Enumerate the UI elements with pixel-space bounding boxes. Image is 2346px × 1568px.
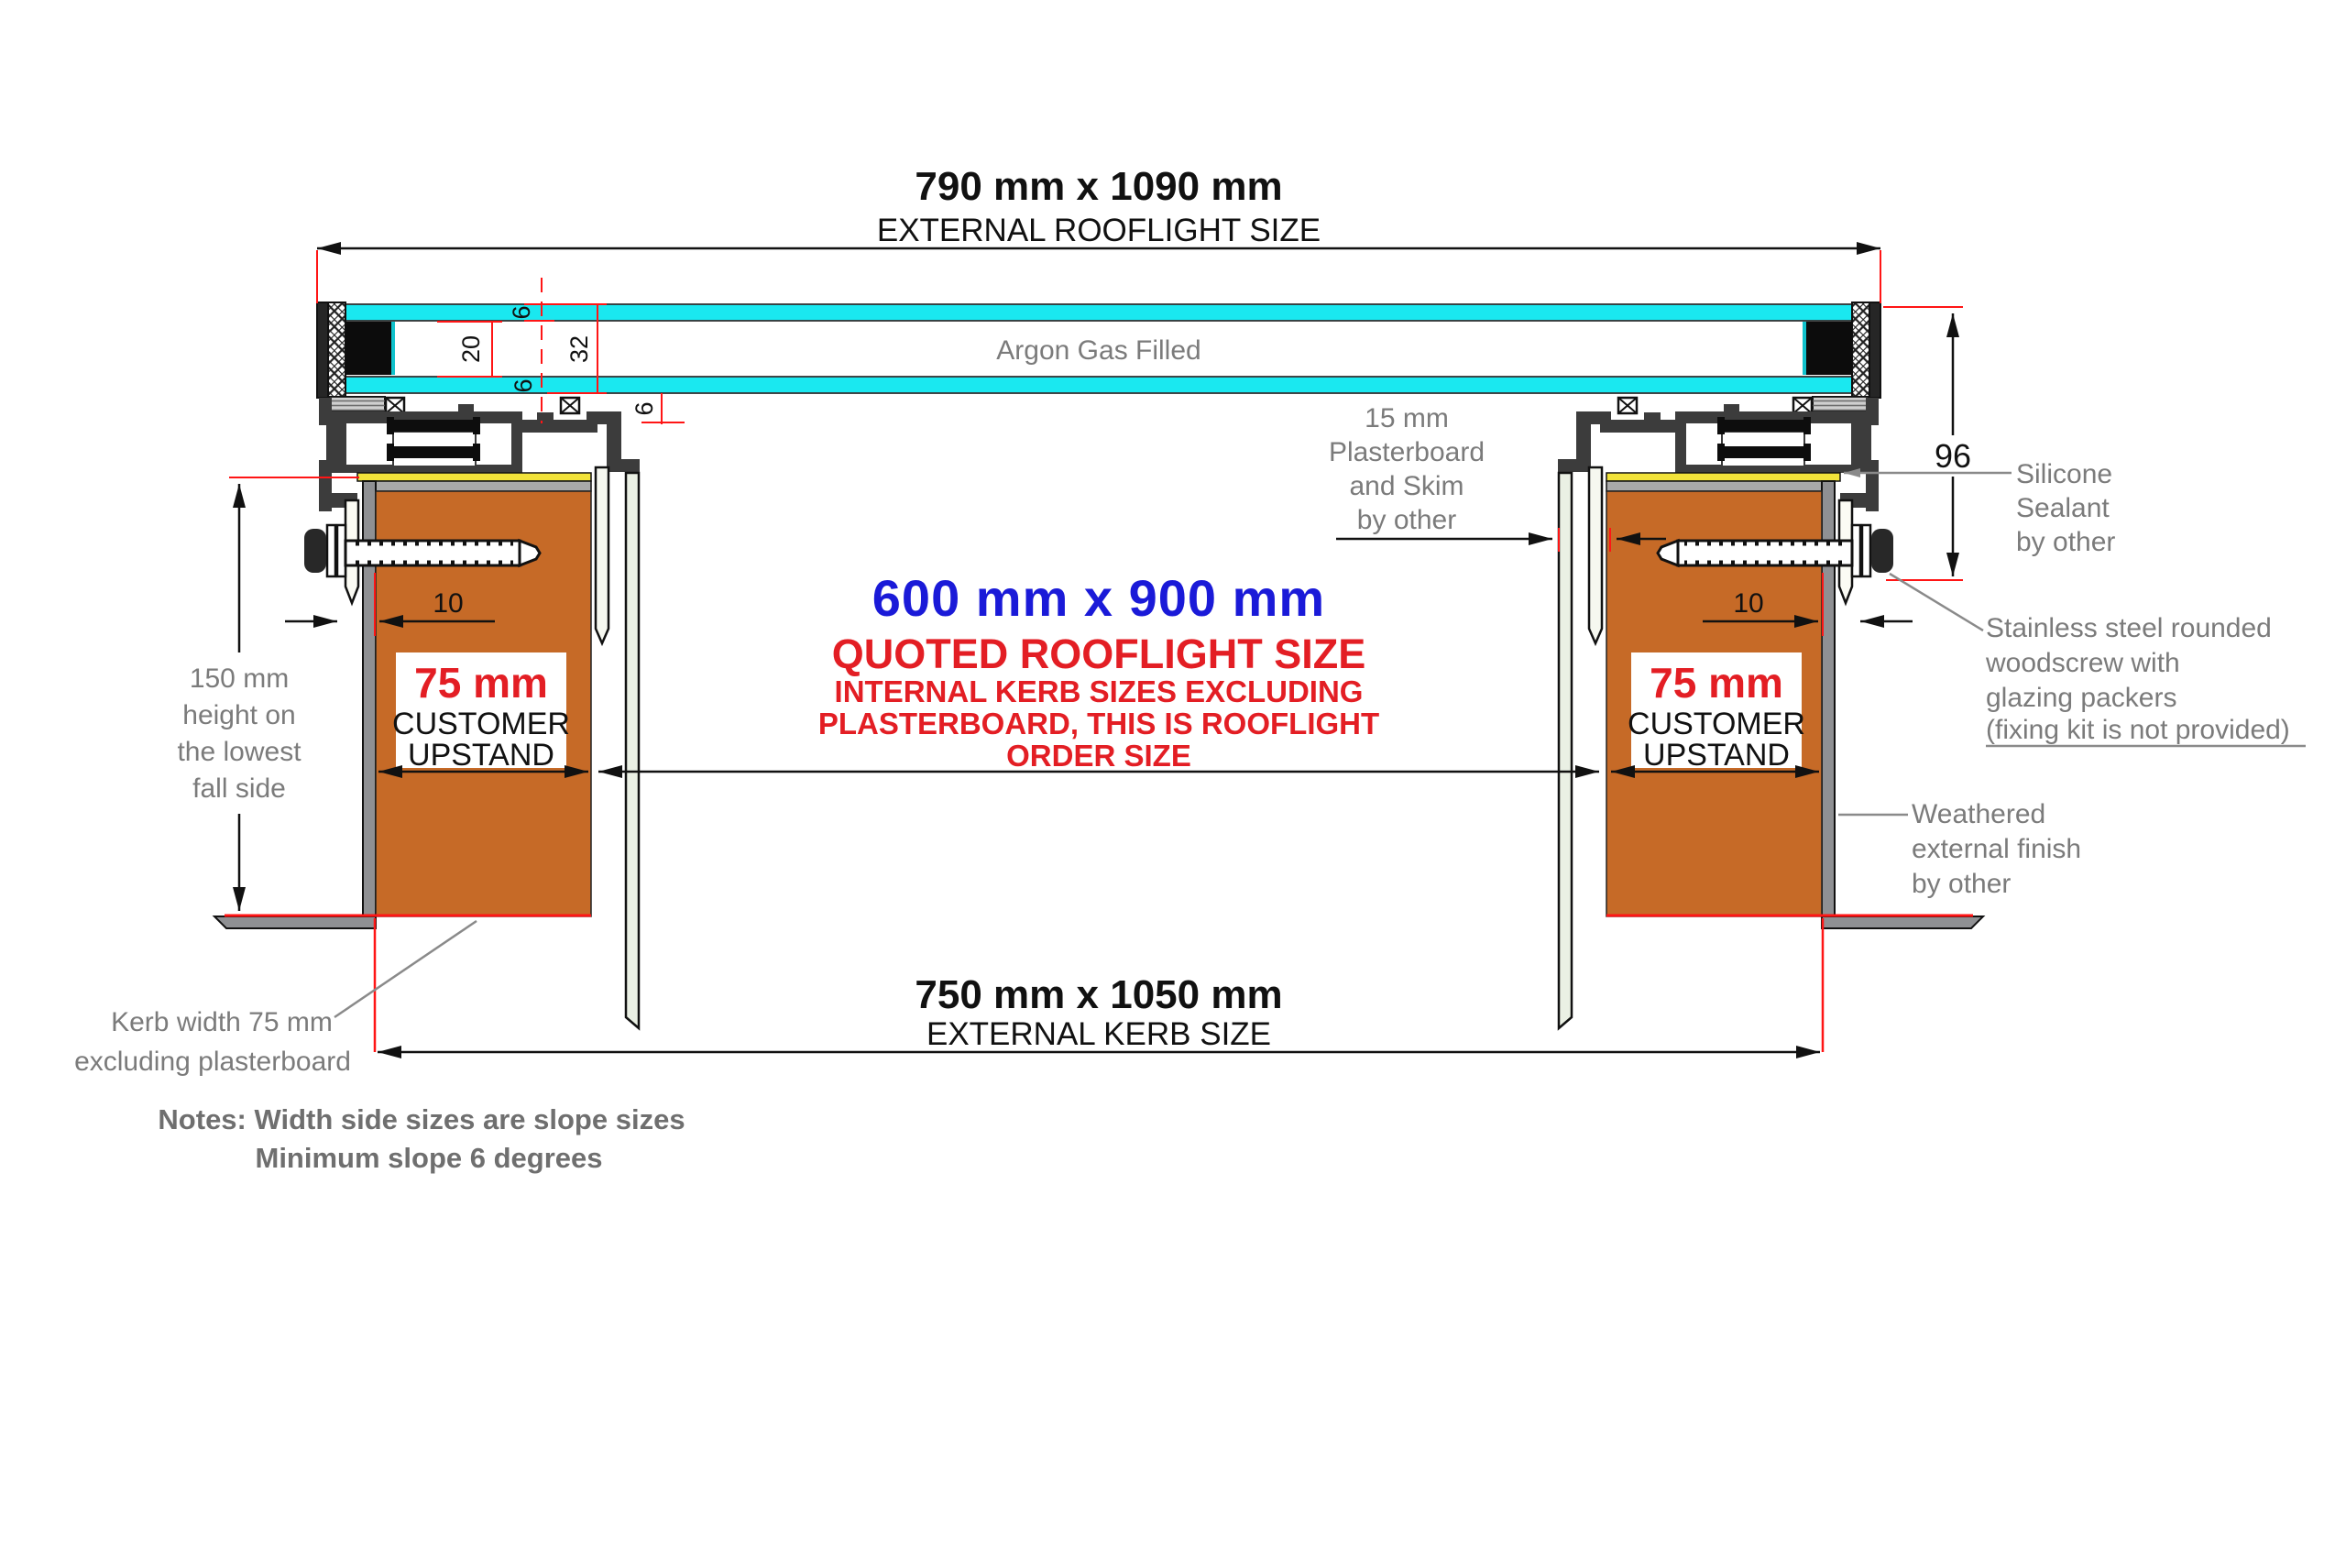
frame-void xyxy=(394,458,475,466)
screw-note-3: glazing packers xyxy=(1986,683,2176,713)
rooflight-section-diagram: Argon Gas Filled xyxy=(0,0,2346,1568)
frame-height-dimension: 96 xyxy=(1883,307,1971,580)
spacer-edge-line xyxy=(391,322,395,375)
height-note-3: the lowest xyxy=(177,737,301,767)
top-pane-dim: 6 xyxy=(508,305,535,319)
notes-line-1: Notes: Width side sizes are slope sizes xyxy=(158,1103,685,1135)
left-kerb-line1: CUSTOMER xyxy=(392,707,570,741)
argon-gas-label: Argon Gas Filled xyxy=(996,335,1200,366)
frame-void xyxy=(394,433,475,447)
quoted-size-value: 600 mm x 900 mm xyxy=(872,569,1325,627)
quoted-size-sub3: ORDER SIZE xyxy=(1006,739,1191,773)
plasterboard-strip xyxy=(626,473,639,1028)
glazing-edge-bar xyxy=(317,302,328,398)
screw-note-1: Stainless steel rounded xyxy=(1986,613,2272,643)
weathered-note-1: Weathered xyxy=(1912,799,2045,829)
plasterboard-note-2: Plasterboard xyxy=(1329,437,1485,467)
weathered-annotation: Weathered external finish by other xyxy=(1838,799,2081,899)
external-rooflight-size: 790 mm x 1090 mm xyxy=(915,164,1282,209)
screw-note-2: woodscrew with xyxy=(1985,648,2180,678)
quoted-size-title: QUOTED ROOFLIGHT SIZE xyxy=(832,630,1366,677)
notes-block: Notes: Width side sizes are slope sizes … xyxy=(158,1103,685,1174)
screw-annotation: Stainless steel rounded woodscrew with g… xyxy=(1890,574,2306,746)
right-gap-value: 10 xyxy=(1733,588,1763,619)
gasket-strip-hatch xyxy=(330,397,385,411)
kerb-width-note-2: excluding plasterboard xyxy=(74,1047,351,1077)
left-kerb-label: 75 mm CUSTOMER UPSTAND xyxy=(392,659,570,773)
frame-height-value: 96 xyxy=(1935,437,1971,475)
frame-void xyxy=(346,423,392,465)
frame-step-dim: 6 xyxy=(630,401,658,415)
kerb-top-capping xyxy=(363,481,591,491)
right-kerb-size: 75 mm xyxy=(1650,659,1783,707)
notes-line-2: Minimum slope 6 degrees xyxy=(256,1142,603,1174)
external-kerb-size: 750 mm x 1050 mm xyxy=(915,972,1282,1017)
silicone-note-2: Sealant xyxy=(2016,493,2110,523)
bottom-pane-dim: 6 xyxy=(510,378,537,392)
glass-pane-bottom xyxy=(345,377,1852,393)
left-kerb-size: 75 mm xyxy=(414,659,548,707)
quoted-size-block: 600 mm x 900 mm QUOTED ROOFLIGHT SIZE IN… xyxy=(818,569,1379,773)
glass-pane-top xyxy=(345,304,1852,321)
silicone-note-1: Silicone xyxy=(2016,459,2112,489)
frame-void xyxy=(477,423,511,465)
height-note-4: fall side xyxy=(192,773,286,804)
external-kerb-dimension: 750 mm x 1050 mm EXTERNAL KERB SIZE xyxy=(378,972,1820,1052)
silicone-gasket-strip xyxy=(357,473,591,481)
frame-groove xyxy=(319,425,326,460)
external-rooflight-dimension: 790 mm x 1090 mm EXTERNAL ROOFLIGHT SIZE xyxy=(317,164,1880,303)
plasterboard-note-3: and Skim xyxy=(1349,471,1464,501)
kerb-width-annotation: Kerb width 75 mm excluding plasterboard xyxy=(74,921,477,1077)
left-kerb-line2: UPSTAND xyxy=(408,738,554,773)
weathered-note-3: by other xyxy=(1912,869,2011,899)
left-gap-value: 10 xyxy=(433,588,463,619)
cavity-dim: 20 xyxy=(457,335,485,363)
height-note-2: height on xyxy=(182,700,295,730)
plasterboard-note-1: 15 mm xyxy=(1365,403,1449,433)
right-kerb-line1: CUSTOMER xyxy=(1628,707,1805,741)
silicone-note-3: by other xyxy=(2016,527,2115,557)
quoted-size-sub2: PLASTERBOARD, THIS IS ROOFLIGHT xyxy=(818,707,1379,740)
clamp-block-icon xyxy=(561,398,579,413)
quoted-size-sub1: INTERNAL KERB SIZES EXCLUDING xyxy=(835,674,1364,708)
glazing-spacer-wedge xyxy=(345,322,391,375)
plasterboard-note-4: by other xyxy=(1357,505,1456,535)
right-kerb-label: 75 mm CUSTOMER UPSTAND xyxy=(1628,659,1805,773)
kerb-width-note-1: Kerb width 75 mm xyxy=(111,1007,333,1037)
external-rooflight-caption: EXTERNAL ROOFLIGHT SIZE xyxy=(877,213,1321,248)
internal-trim-plate xyxy=(596,467,608,643)
clamp-block-icon xyxy=(386,398,404,413)
weathered-note-2: external finish xyxy=(1912,834,2081,864)
glazing-edge-seal-hatch xyxy=(328,302,345,398)
right-kerb-line2: UPSTAND xyxy=(1643,738,1790,773)
glazing-unit-dim: 32 xyxy=(565,335,593,363)
diagram-canvas: Argon Gas Filled xyxy=(0,0,2346,1568)
external-kerb-caption: EXTERNAL KERB SIZE xyxy=(926,1016,1271,1052)
height-note-1: 150 mm xyxy=(190,663,289,694)
screw-note-4: (fixing kit is not provided) xyxy=(1986,715,2290,745)
membrane-roof-foot xyxy=(214,916,376,928)
